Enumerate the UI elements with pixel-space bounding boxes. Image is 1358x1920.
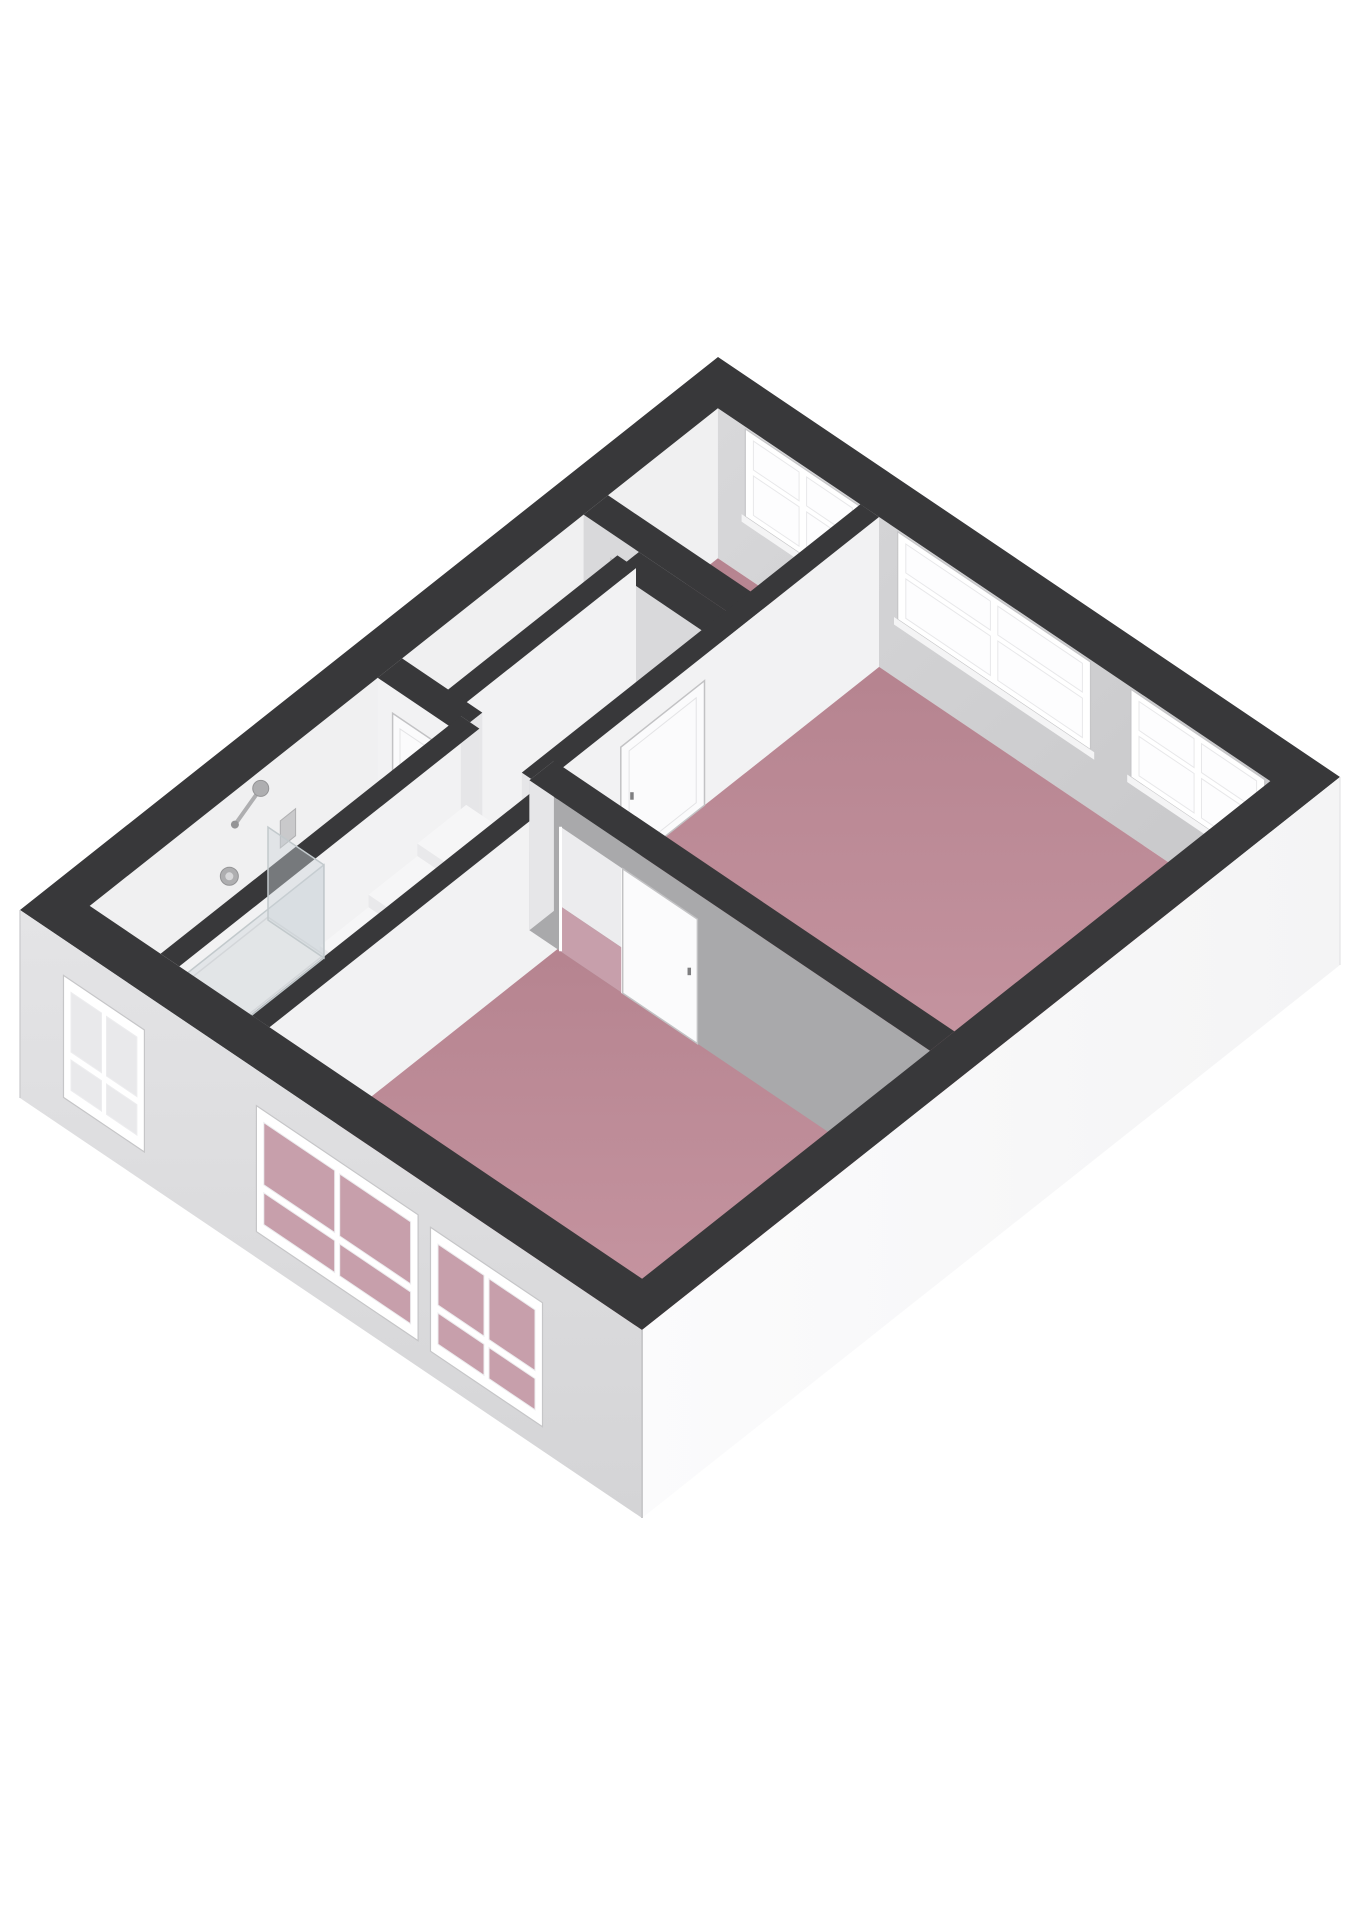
floorplan-stage <box>0 0 1358 1920</box>
floorplan-root <box>20 357 1340 1518</box>
floorplan-canvas <box>0 0 1358 1920</box>
shower-head <box>253 780 269 796</box>
